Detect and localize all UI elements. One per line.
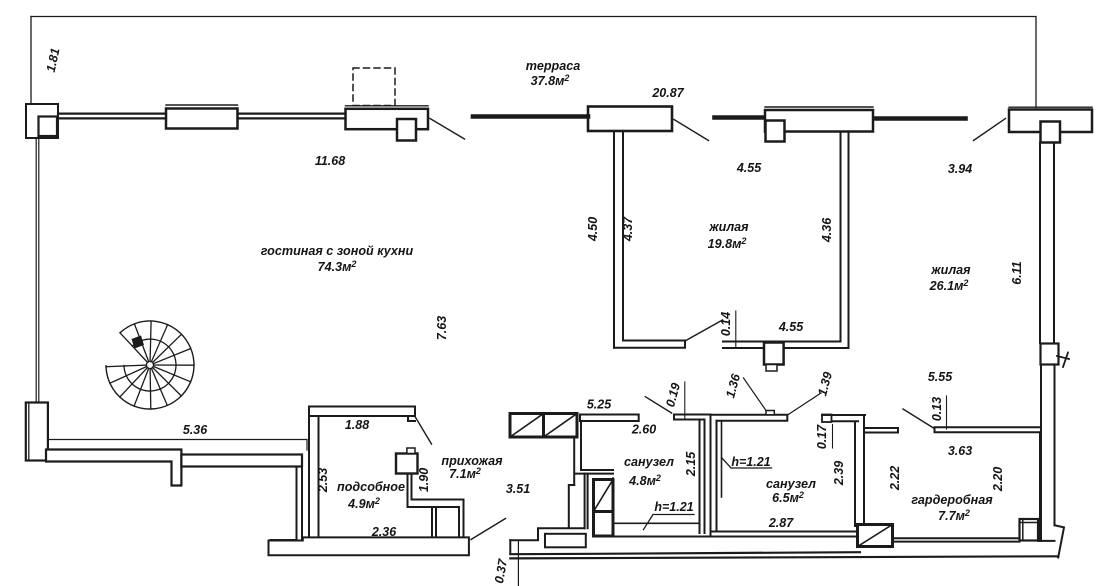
svg-text:0.14: 0.14 bbox=[719, 312, 733, 336]
svg-text:26.1м2: 26.1м2 bbox=[929, 278, 969, 293]
svg-text:1.39: 1.39 bbox=[815, 370, 835, 397]
svg-text:1.88: 1.88 bbox=[345, 418, 369, 432]
svg-text:3.94: 3.94 bbox=[948, 162, 972, 176]
svg-text:0.37: 0.37 bbox=[492, 557, 510, 584]
svg-text:4.50: 4.50 bbox=[586, 217, 600, 242]
svg-text:7.7м2: 7.7м2 bbox=[938, 508, 970, 523]
svg-text:жилая: жилая bbox=[930, 263, 971, 277]
svg-text:1.81: 1.81 bbox=[44, 47, 63, 74]
svg-text:37.8м2: 37.8м2 bbox=[531, 73, 570, 88]
svg-text:7.1м2: 7.1м2 bbox=[449, 466, 481, 481]
svg-text:7.63: 7.63 bbox=[435, 316, 449, 340]
svg-text:74.3м2: 74.3м2 bbox=[318, 259, 357, 274]
svg-text:жилая: жилая bbox=[708, 220, 749, 234]
svg-text:2.53: 2.53 bbox=[316, 468, 330, 493]
svg-text:4.55: 4.55 bbox=[778, 320, 804, 334]
svg-text:2.20: 2.20 bbox=[991, 467, 1005, 492]
svg-text:терраса: терраса bbox=[526, 59, 580, 73]
svg-text:4.37: 4.37 bbox=[621, 216, 635, 242]
svg-text:1.36: 1.36 bbox=[723, 371, 743, 399]
svg-text:прихожая: прихожая bbox=[441, 454, 503, 468]
svg-text:подсобное: подсобное bbox=[337, 480, 405, 494]
svg-text:6.11: 6.11 bbox=[1010, 261, 1024, 284]
svg-text:h=1.21: h=1.21 bbox=[731, 455, 770, 469]
svg-text:0.19: 0.19 bbox=[663, 381, 683, 408]
svg-text:h=1.21: h=1.21 bbox=[654, 500, 693, 514]
svg-text:санузел: санузел bbox=[766, 477, 816, 491]
svg-text:1.90: 1.90 bbox=[417, 468, 431, 492]
svg-text:4.55: 4.55 bbox=[736, 161, 762, 175]
svg-text:гардеробная: гардеробная bbox=[911, 493, 993, 507]
svg-text:4.8м2: 4.8м2 bbox=[628, 473, 661, 488]
svg-text:3.63: 3.63 bbox=[948, 444, 972, 458]
svg-text:5.55: 5.55 bbox=[928, 370, 953, 384]
svg-text:4.9м2: 4.9м2 bbox=[347, 496, 380, 511]
svg-text:3.51: 3.51 bbox=[506, 482, 530, 496]
svg-text:гостиная с зоной кухни: гостиная с зоной кухни bbox=[261, 244, 414, 258]
svg-text:5.36: 5.36 bbox=[183, 423, 208, 437]
svg-text:2.36: 2.36 bbox=[371, 525, 397, 539]
svg-text:19.8м2: 19.8м2 bbox=[708, 236, 747, 251]
svg-text:5.25: 5.25 bbox=[587, 398, 612, 412]
svg-text:2.60: 2.60 bbox=[631, 423, 656, 437]
svg-text:20.87: 20.87 bbox=[651, 86, 684, 100]
svg-text:6.5м2: 6.5м2 bbox=[772, 490, 804, 505]
svg-text:санузел: санузел bbox=[624, 455, 674, 469]
svg-text:0.13: 0.13 bbox=[930, 397, 944, 421]
svg-text:2.39: 2.39 bbox=[832, 461, 846, 486]
svg-text:0.17: 0.17 bbox=[815, 424, 829, 449]
svg-text:4.36: 4.36 bbox=[820, 217, 834, 243]
svg-text:2.87: 2.87 bbox=[768, 516, 794, 530]
svg-text:2.15: 2.15 bbox=[684, 451, 698, 477]
svg-text:11.68: 11.68 bbox=[315, 154, 345, 168]
svg-text:2.22: 2.22 bbox=[888, 466, 902, 491]
